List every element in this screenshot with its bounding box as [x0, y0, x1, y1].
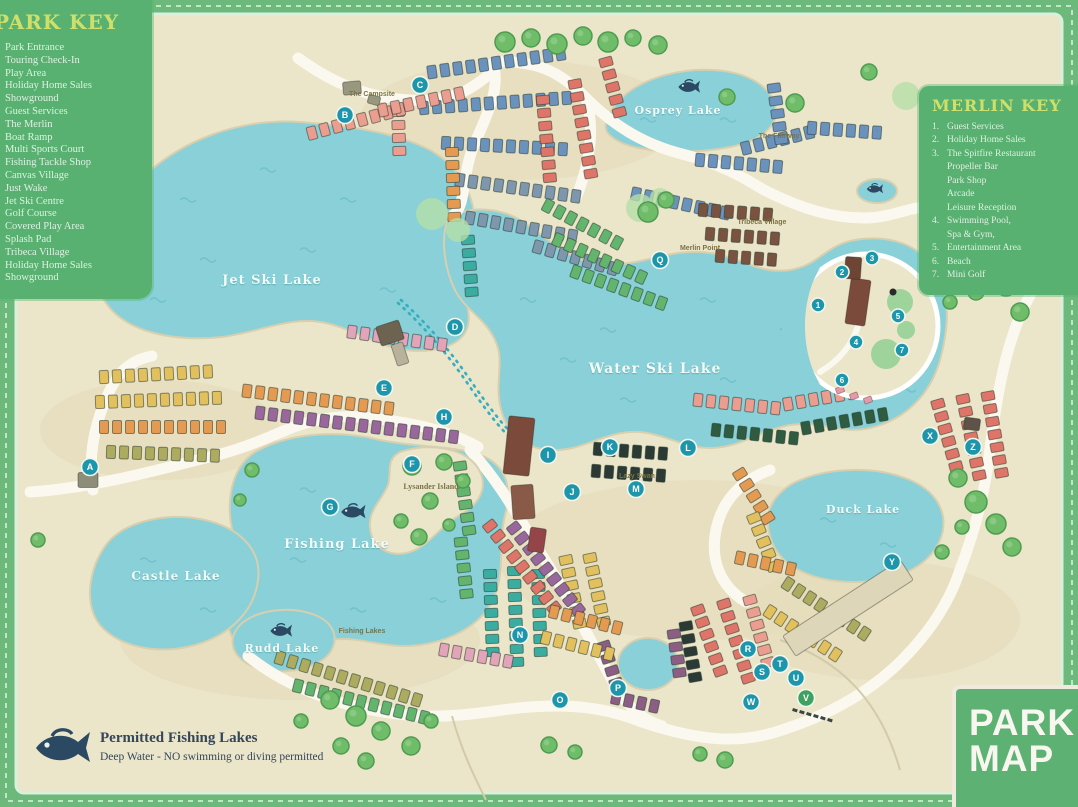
tree-icon [346, 706, 366, 726]
tree-highlight [425, 496, 431, 502]
park-key-item-label: Park Entrance [5, 42, 64, 55]
caravan [392, 120, 405, 129]
caravan [732, 397, 742, 411]
lawn [892, 82, 920, 110]
caravan [990, 442, 1004, 453]
caravan [126, 421, 135, 434]
caravan [509, 605, 522, 614]
svg-text:L: L [685, 443, 691, 453]
map-label: The Fairway [759, 133, 800, 140]
caravan [447, 186, 460, 195]
caravan [757, 231, 767, 245]
caravan [465, 287, 479, 297]
tree-icon [943, 295, 957, 309]
caravan [212, 391, 221, 404]
tree-icon [1011, 303, 1029, 321]
caravan [734, 157, 744, 171]
tree-highlight [1014, 306, 1020, 312]
caravan [683, 646, 697, 657]
caravan [543, 173, 557, 183]
svg-text:R: R [745, 644, 752, 654]
svg-text:S: S [759, 667, 765, 677]
map-marker: J [564, 484, 581, 501]
caravan [504, 54, 515, 68]
merlin-key-item-label: Park Shop [947, 175, 986, 188]
caravan [424, 336, 435, 350]
caravan [541, 224, 552, 238]
park-key-item-label: Just Wake [5, 183, 47, 196]
tree-icon [965, 491, 987, 513]
caravan [493, 139, 503, 152]
merlin-key-item: Propeller Bar [932, 161, 1078, 174]
park-key-item: Play Area [0, 68, 146, 81]
merlin-key-number: 5. [932, 242, 947, 255]
caravan [503, 218, 514, 232]
svg-text:E: E [381, 383, 387, 393]
caravan [319, 394, 330, 408]
caravan [711, 423, 721, 437]
caravan [708, 154, 718, 168]
caravan [410, 425, 421, 439]
tree-icon [649, 36, 667, 54]
merlin-key-item-label: Mini Golf [947, 269, 985, 282]
caravan [178, 421, 187, 434]
merlin-key-item: 4.Swimming Pool, [932, 215, 1078, 228]
caravan [138, 368, 148, 381]
caravan [445, 147, 458, 156]
caravan [519, 140, 529, 153]
caravan [533, 621, 546, 630]
park-map-scene: ABCDEFGHIJKLMNOPQRSTUVWXYZThe CampsiteLa… [0, 0, 1078, 807]
park-key-item: Boat Ramp [0, 132, 146, 145]
tree-highlight [570, 747, 575, 752]
merlin-key-panel: MERLIN KEY 1.Guest Services2.Holiday Hom… [919, 86, 1078, 295]
island-label: Lysander Island [403, 482, 459, 491]
tree-highlight [952, 472, 958, 478]
tree-highlight [661, 195, 667, 201]
caravan [497, 96, 507, 110]
tree-icon [394, 514, 408, 528]
svg-text:H: H [441, 412, 448, 422]
caravan [184, 448, 193, 461]
building [963, 417, 981, 431]
caravan [358, 419, 369, 433]
caravan [491, 56, 502, 70]
merlin-key-number: 7. [932, 269, 947, 282]
caravan [724, 424, 734, 438]
badge-line1: PARK [956, 689, 1078, 741]
caravan [750, 427, 760, 441]
caravan [807, 121, 817, 135]
tree-icon [372, 722, 390, 740]
building [503, 416, 535, 476]
caravan [165, 421, 174, 434]
park-key-item-label: Multi Sports Court [5, 144, 84, 157]
caravan [186, 392, 195, 405]
caravan [510, 95, 520, 109]
caravan [480, 177, 491, 191]
caravan [486, 634, 499, 643]
caravan [452, 61, 463, 75]
caravan [760, 159, 770, 173]
caravan [656, 469, 666, 483]
caravan [204, 421, 213, 434]
park-key-item: The Merlin [0, 119, 146, 132]
caravan [695, 153, 705, 167]
park-key-item: Splash Pad [0, 234, 146, 247]
map-label: Merlin Point [680, 245, 721, 252]
caravan [347, 325, 358, 339]
park-key-item: Covered Play Area [0, 221, 146, 234]
caravan [718, 228, 728, 242]
caravan [562, 91, 572, 105]
caravan [747, 158, 757, 172]
tree-icon [861, 64, 877, 80]
caravan [530, 50, 541, 64]
caravan [767, 253, 777, 267]
tree-icon [424, 714, 438, 728]
merlin-key-item-label: Swimming Pool, [947, 215, 1011, 228]
park-key-item-label: Fishing Tackle Shop [5, 157, 91, 170]
tree-icon [436, 454, 452, 470]
caravan [645, 446, 655, 460]
tree-highlight [414, 532, 420, 538]
caravan [508, 579, 521, 588]
caravan [833, 123, 843, 137]
svg-text:Y: Y [889, 557, 895, 567]
caravan [160, 393, 169, 406]
tree-highlight [720, 755, 726, 761]
svg-text:X: X [927, 431, 933, 441]
map-label: The Campsite [349, 91, 395, 98]
caravan [447, 199, 460, 208]
lake-name-label: Castle Lake [131, 569, 220, 583]
caravan [119, 446, 128, 459]
map-marker: Z [965, 439, 982, 456]
caravan [820, 122, 830, 136]
merlin-key-item-label: Beach [947, 256, 971, 269]
park-key-item-label: Play Area [5, 68, 46, 81]
svg-text:F: F [409, 459, 415, 469]
caravan [152, 421, 161, 434]
tree-highlight [296, 716, 301, 721]
caravan [345, 417, 356, 431]
tree-icon [693, 747, 707, 761]
caravan [782, 397, 793, 411]
map-marker: V [798, 690, 815, 707]
tree-highlight [375, 725, 381, 731]
tree-icon [986, 514, 1006, 534]
caravan [255, 386, 266, 400]
map-marker: 4 [849, 335, 863, 349]
caravan [519, 182, 530, 196]
map-marker: I [540, 447, 557, 464]
caravan [800, 421, 811, 435]
map-marker: R [740, 641, 757, 658]
caravan [468, 175, 479, 189]
caravan [826, 416, 837, 430]
map-marker: G [322, 499, 339, 516]
caravan [173, 393, 182, 406]
caravan [199, 392, 208, 405]
tree-highlight [396, 516, 401, 521]
caravan [460, 512, 474, 523]
merlin-key-item-label: Spa & Gym, [947, 229, 995, 242]
tree-highlight [602, 36, 609, 43]
caravan [438, 643, 449, 657]
caravan [293, 390, 304, 404]
tree-icon [245, 463, 259, 477]
caravan [808, 392, 819, 406]
caravan [437, 338, 448, 352]
tree-highlight [439, 457, 445, 463]
caravan [534, 647, 547, 656]
caravan [549, 92, 559, 106]
merlin-key-item-label: Leisure Reception [947, 202, 1016, 215]
caravan [632, 445, 642, 459]
caravan [191, 421, 200, 434]
merlin-key-item-label: Propeller Bar [947, 161, 998, 174]
park-key-item: Canvas Village [0, 170, 146, 183]
map-marker: N [512, 627, 529, 644]
tree-highlight [445, 521, 449, 525]
svg-text:C: C [417, 80, 424, 90]
caravan [268, 408, 279, 422]
caravan [306, 412, 317, 426]
caravan [688, 672, 702, 683]
caravan [770, 232, 780, 246]
park-key-item: Holiday Home Sales [0, 260, 146, 273]
caravan [448, 430, 459, 444]
caravan [517, 52, 528, 66]
svg-text:4: 4 [854, 338, 859, 347]
tree-highlight [642, 206, 649, 213]
merlin-key-item: 3.The Spitfire Restaurant [932, 148, 1078, 161]
caravan [985, 416, 999, 427]
caravan [397, 423, 408, 437]
svg-text:D: D [452, 322, 459, 332]
caravan [773, 160, 783, 174]
caravan [570, 91, 584, 102]
tree-icon [786, 94, 804, 112]
svg-text:A: A [87, 462, 94, 472]
caravan [859, 125, 869, 139]
park-key-item: Fishing Tackle Shop [0, 157, 146, 170]
caravan [477, 213, 488, 227]
caravan [453, 461, 467, 472]
caravan [994, 467, 1008, 478]
tree-highlight [499, 36, 506, 43]
park-map-badge: PARK MAP [952, 685, 1078, 807]
svg-text:Q: Q [656, 255, 663, 265]
map-marker: F [404, 456, 421, 473]
tree-icon [234, 494, 246, 506]
caravan [458, 499, 472, 510]
caravan [483, 569, 496, 578]
tree-highlight [544, 740, 550, 746]
map-marker: 6 [835, 373, 849, 387]
caravan [171, 448, 180, 461]
merlin-key-item: 1.Guest Services [932, 121, 1078, 134]
caravan [821, 390, 832, 404]
caravan [306, 392, 317, 406]
merlin-key-number: 6. [932, 256, 947, 269]
tree-highlight [247, 465, 252, 470]
caravan [467, 138, 477, 151]
map-marker: L [680, 440, 697, 457]
caravan [158, 447, 167, 460]
caravan [358, 398, 369, 412]
map-marker: 1 [811, 298, 825, 312]
caravan [242, 384, 253, 398]
svg-text:7: 7 [900, 346, 905, 355]
map-marker: Q [652, 252, 669, 269]
tree-highlight [426, 716, 431, 721]
merlin-key-item: Park Shop [932, 175, 1078, 188]
caravan [484, 595, 497, 604]
tree-highlight [551, 38, 558, 45]
park-key-item: Holiday Home Sales [0, 80, 146, 93]
merlin-key-item-label: The Spitfire Restaurant [947, 148, 1036, 161]
caravan [485, 621, 498, 630]
park-key-item-label: Showground [5, 93, 59, 106]
tree-highlight [324, 694, 330, 700]
map-marker: B [337, 107, 354, 124]
caravan [516, 220, 527, 234]
caravan [698, 203, 708, 217]
svg-text:J: J [569, 487, 574, 497]
caravan [471, 98, 481, 112]
caravan [604, 465, 614, 479]
caravan [132, 446, 141, 459]
caravan [523, 94, 533, 108]
caravan [280, 389, 291, 403]
caravan [706, 394, 716, 408]
park-key-list: Park EntranceTouring Check-InPlay AreaHo… [0, 42, 146, 285]
caravan [95, 395, 104, 408]
park-key-item-label: The Merlin [5, 119, 53, 132]
caravan [813, 419, 824, 433]
caravan [454, 537, 468, 547]
map-label: Fishing Lakes [339, 628, 386, 635]
caravan [332, 395, 343, 409]
caravan [463, 261, 477, 271]
map-marker: X [922, 428, 939, 445]
caravan [558, 142, 568, 155]
caravan [465, 60, 476, 74]
caravan [484, 97, 494, 111]
tree-icon [955, 520, 969, 534]
svg-text:Z: Z [970, 442, 976, 452]
caravan [737, 426, 747, 440]
caravan [485, 608, 498, 617]
caravan [281, 409, 292, 423]
svg-text:N: N [517, 630, 524, 640]
svg-text:G: G [326, 502, 333, 512]
tree-icon [717, 752, 733, 768]
caravan [992, 454, 1006, 465]
caravan [538, 121, 552, 131]
merlin-key-number: 4. [932, 215, 947, 228]
tree-icon [625, 30, 641, 46]
caravan [988, 429, 1002, 440]
merlin-key-item: 5.Entertainment Area [932, 242, 1078, 255]
caravan [113, 421, 122, 434]
lake-name-label: Jet Ski Lake [221, 273, 322, 288]
tree-highlight [969, 495, 977, 503]
map-label: Tribeca Village [738, 219, 787, 226]
tree-icon [719, 89, 735, 105]
caravan [724, 205, 734, 219]
svg-text:P: P [615, 683, 621, 693]
park-key-item-label: Canvas Village [5, 170, 69, 183]
caravan [502, 654, 513, 668]
svg-text:K: K [607, 442, 614, 452]
map-marker: M [628, 481, 645, 498]
tree-icon [547, 34, 567, 54]
map-marker: E [376, 380, 393, 397]
caravan [490, 215, 501, 229]
map-marker: U [788, 670, 805, 687]
caravan [435, 428, 446, 442]
caravan [319, 414, 330, 428]
caravan [658, 447, 668, 461]
tree-highlight [405, 740, 411, 746]
map-marker: 7 [895, 343, 909, 357]
park-key-item-label: Splash Pad [5, 234, 51, 247]
caravan [754, 252, 764, 266]
tree-icon [574, 27, 592, 45]
caravan [446, 160, 459, 169]
tree-icon [949, 469, 967, 487]
tree-highlight [695, 749, 700, 754]
caravan [478, 58, 489, 72]
badge-line2: MAP [956, 741, 1078, 777]
merlin-key-item-label: Holiday Home Sales [947, 134, 1026, 147]
caravan [542, 160, 556, 170]
caravan [125, 369, 135, 382]
tree-highlight [722, 92, 728, 98]
svg-text:V: V [803, 693, 809, 703]
tree-highlight [33, 535, 38, 540]
caravan [737, 206, 747, 220]
caravan [537, 108, 551, 118]
lake-name-label: Water Ski Lake [588, 361, 722, 377]
merlin-key-list: 1.Guest Services2.Holiday Home Sales3.Th… [932, 121, 1078, 283]
tree-highlight [361, 756, 367, 762]
tree-icon [333, 738, 349, 754]
caravan [669, 642, 683, 653]
caravan [384, 422, 395, 436]
caravan [462, 248, 476, 258]
tree-highlight [458, 476, 463, 481]
park-key-item-label: Guest Services [5, 106, 68, 119]
caravan [440, 63, 451, 77]
caravan [422, 427, 433, 441]
legend-subtitle: Deep Water - NO swimming or diving permi… [100, 751, 323, 763]
svg-text:B: B [342, 110, 349, 120]
caravan [480, 138, 490, 151]
caravan [772, 121, 786, 132]
tree-icon [443, 519, 455, 531]
caravan [672, 667, 686, 678]
caravan [462, 525, 476, 536]
tree-highlight [628, 33, 634, 39]
caravan [190, 366, 200, 379]
caravan [177, 366, 187, 379]
svg-text:T: T [777, 659, 783, 669]
legend-title: Permitted Fishing Lakes [100, 730, 323, 747]
